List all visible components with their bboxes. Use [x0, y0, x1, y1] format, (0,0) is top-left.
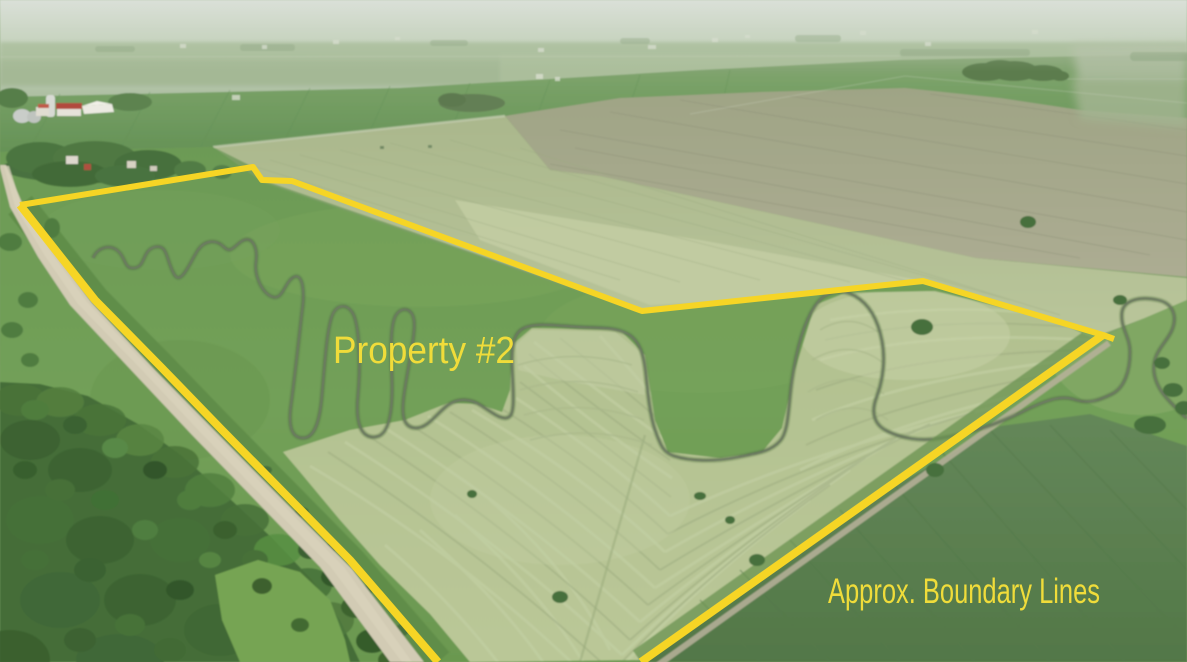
svg-text:Approx. Boundary Lines: Approx. Boundary Lines — [828, 572, 1100, 611]
svg-text:Property #2: Property #2 — [333, 330, 515, 372]
